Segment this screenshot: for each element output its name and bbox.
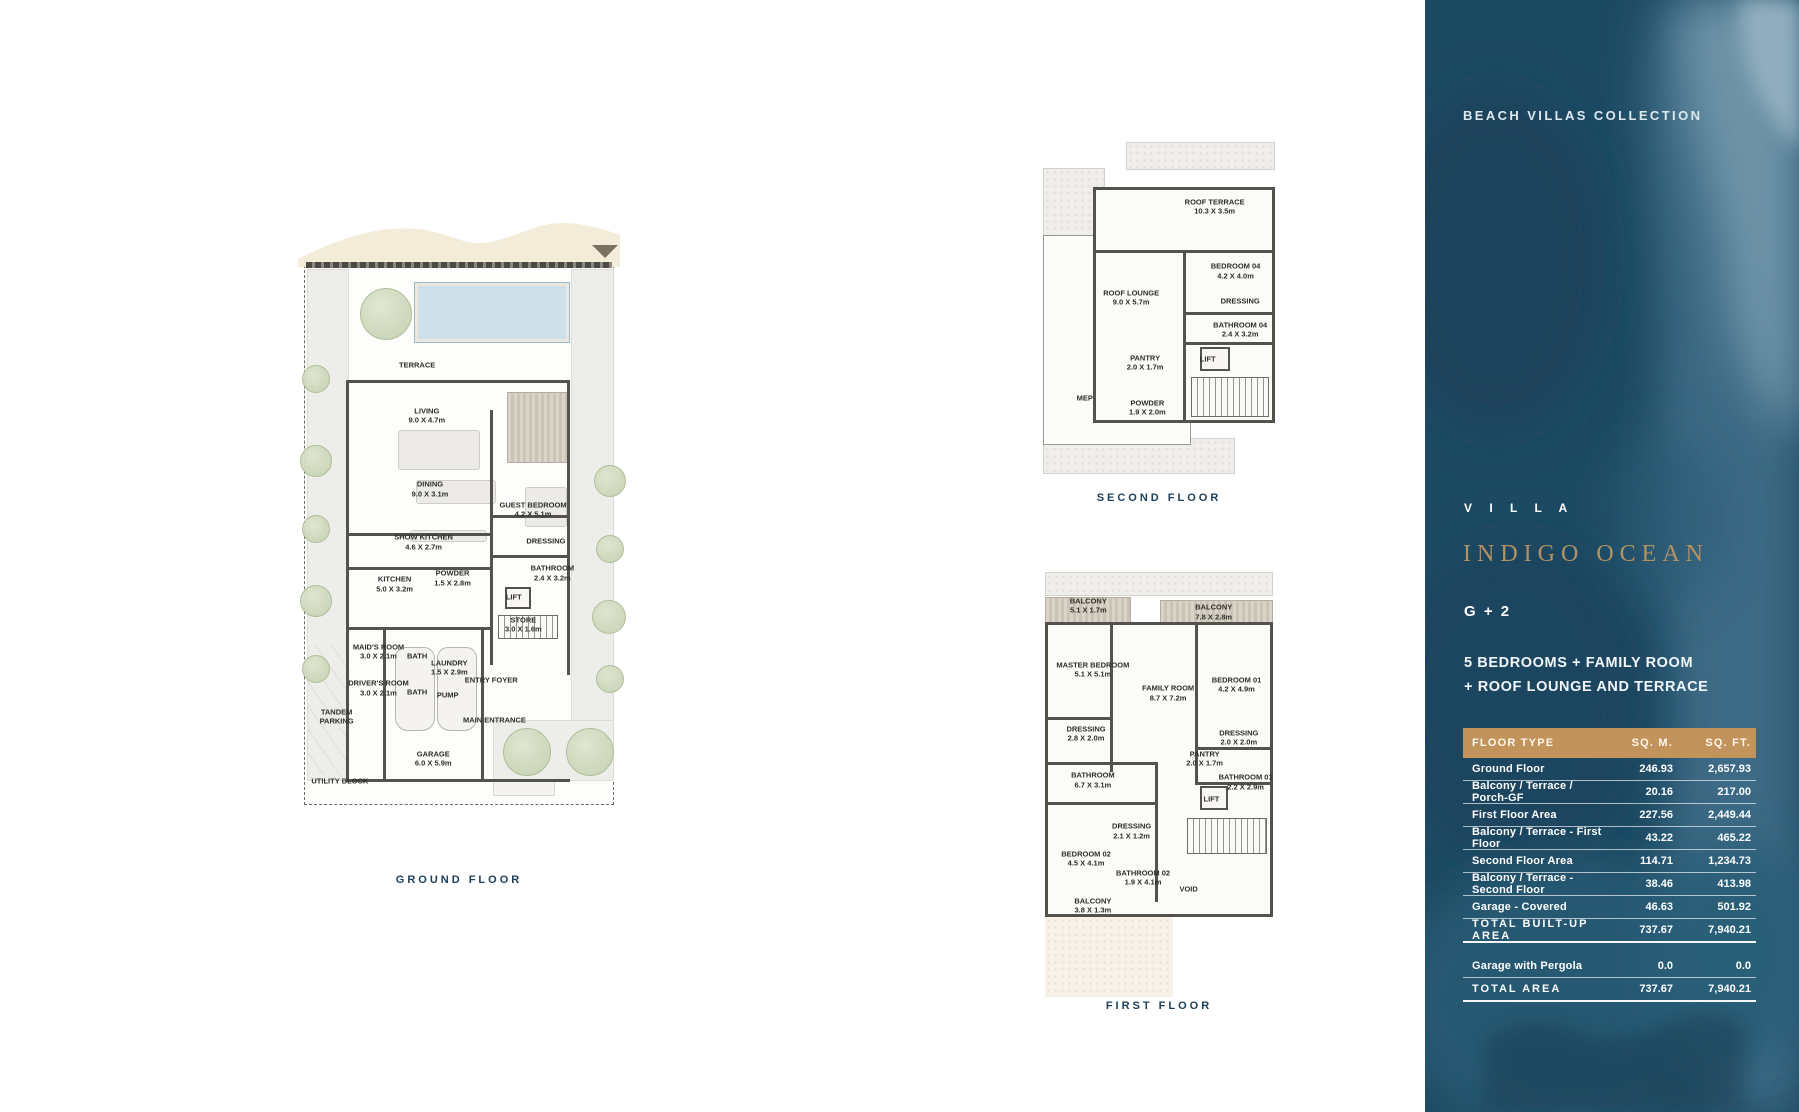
room-label: GUEST BEDROOM 4.2 X 5.1m xyxy=(500,501,567,520)
second-floor-plan: ROOF TERRACE 10.3 X 3.5m BEDROOM 04 4.2 … xyxy=(1043,142,1275,474)
room-label: ROOF LOUNGE 9.0 X 5.7m xyxy=(1103,289,1159,308)
header-sqm: SQ. M. xyxy=(1611,737,1673,749)
second-floor-caption: SECOND FLOOR xyxy=(1043,492,1275,504)
room-label: BEDROOM 04 4.2 X 4.0m xyxy=(1211,262,1261,281)
features-line-1: 5 BEDROOMS + FAMILY ROOM xyxy=(1464,651,1708,675)
room-label: SHOW KITCHEN 4.6 X 2.7m xyxy=(394,533,453,552)
room-label: DRIVER'S ROOM 3.0 X 2.1m xyxy=(348,679,409,698)
first-room-labels: BALCONY 5.1 X 1.7m BALCONY 7.8 X 2.8m MA… xyxy=(1045,572,1273,997)
table-row xyxy=(1463,943,1756,955)
ground-floor-plan: TERRACE LIVING 9.0 X 4.7m DINING 9.0 X 3… xyxy=(298,215,620,805)
room-label: BATHROOM 02 1.9 X 4.1m xyxy=(1116,869,1170,888)
room-label: DRESSING xyxy=(526,537,565,546)
room-label: TANDEM PARKING xyxy=(320,707,354,726)
room-label: BALCONY 7.8 X 2.8m xyxy=(1195,603,1232,622)
villa-type-label: V I L L A xyxy=(1464,501,1574,515)
table-row: Garage with Pergola 0.0 0.0 xyxy=(1463,955,1756,978)
room-label: BATH xyxy=(407,652,427,661)
room-label: VOID xyxy=(1179,884,1197,893)
room-label: BATHROOM 01 2.2 X 2.9m xyxy=(1219,773,1273,792)
villa-name: INDIGO OCEAN xyxy=(1463,541,1709,568)
sidebar: BEACH VILLAS COLLECTION V I L L A INDIGO… xyxy=(1425,0,1799,1112)
room-label: BEDROOM 01 4.2 X 4.9m xyxy=(1212,675,1262,694)
table-header: FLOOR TYPE SQ. M. SQ. FT. xyxy=(1463,728,1756,758)
room-label: STORE 3.0 X 1.6m xyxy=(505,616,542,635)
ground-room-labels: TERRACE LIVING 9.0 X 4.7m DINING 9.0 X 3… xyxy=(298,215,620,805)
room-label: PUMP xyxy=(437,691,459,700)
room-label: LIVING 9.0 X 4.7m xyxy=(408,406,445,425)
collection-title: BEACH VILLAS COLLECTION xyxy=(1463,108,1702,123)
second-room-labels: ROOF TERRACE 10.3 X 3.5m BEDROOM 04 4.2 … xyxy=(1043,142,1275,474)
room-label: ROOF TERRACE 10.3 X 3.5m xyxy=(1185,197,1245,216)
table-row: Garage - Covered 46.63 501.92 xyxy=(1463,896,1756,919)
room-label: DRESSING xyxy=(1221,297,1260,306)
room-label: DRESSING 2.0 X 2.0m xyxy=(1219,728,1258,747)
first-floor-caption: FIRST FLOOR xyxy=(1045,1000,1273,1012)
room-label: MEP xyxy=(1077,393,1093,402)
ground-floor-caption: GROUND FLOOR xyxy=(298,874,620,886)
room-label: MAID'S ROOM 3.0 X 2.1m xyxy=(353,642,404,661)
features: 5 BEDROOMS + FAMILY ROOM + ROOF LOUNGE A… xyxy=(1464,651,1708,699)
table-row: First Floor Area 227.56 2,449.44 xyxy=(1463,804,1756,827)
area-table: FLOOR TYPE SQ. M. SQ. FT. Ground Floor 2… xyxy=(1463,728,1756,1002)
room-label: LIFT xyxy=(506,593,522,602)
first-floor-plan: BALCONY 5.1 X 1.7m BALCONY 7.8 X 2.8m MA… xyxy=(1045,572,1273,997)
table-row: Ground Floor 246.93 2,657.93 xyxy=(1463,758,1756,781)
room-label: POWDER 1.5 X 2.8m xyxy=(434,569,471,588)
header-sqft: SQ. FT. xyxy=(1673,737,1751,749)
room-label: DRESSING 2.1 X 1.2m xyxy=(1112,822,1151,841)
table-rows: Ground Floor 246.93 2,657.93 Balcony / T… xyxy=(1463,758,1756,1002)
room-label: MASTER BEDROOM 5.1 X 5.1m xyxy=(1056,660,1129,679)
table-row: TOTAL AREA 737.67 7,940.21 xyxy=(1463,978,1756,1002)
room-label: TERRACE xyxy=(399,361,435,370)
room-label: BEDROOM 02 4.5 X 4.1m xyxy=(1061,850,1111,869)
storeys-label: G + 2 xyxy=(1464,603,1511,620)
header-floor-type: FLOOR TYPE xyxy=(1472,737,1611,749)
table-row: Second Floor Area 114.71 1,234.73 xyxy=(1463,850,1756,873)
room-label: GARAGE 6.0 X 5.9m xyxy=(415,750,452,769)
room-label: PANTRY 2.0 X 1.7m xyxy=(1186,750,1223,769)
table-row: TOTAL BUILT-UP AREA 737.67 7,940.21 xyxy=(1463,919,1756,943)
table-row: Balcony / Terrace - Second Floor 38.46 4… xyxy=(1463,873,1756,896)
room-label: LIFT xyxy=(1204,795,1220,804)
table-row: Balcony / Terrace / Porch-GF 20.16 217.0… xyxy=(1463,781,1756,804)
room-label: DRESSING 2.8 X 2.0m xyxy=(1066,724,1105,743)
room-label: BATHROOM 04 2.4 X 3.2m xyxy=(1213,320,1267,339)
room-label: BATH xyxy=(407,688,427,697)
room-label: MAIN ENTRANCE xyxy=(463,715,526,724)
brochure-page: TERRACE LIVING 9.0 X 4.7m DINING 9.0 X 3… xyxy=(0,0,1799,1112)
room-label: DINING 9.0 X 3.1m xyxy=(412,480,449,499)
room-label: BATHROOM 6.7 X 3.1m xyxy=(1071,771,1115,790)
features-line-2: + ROOF LOUNGE AND TERRACE xyxy=(1464,675,1708,699)
room-label: ENTRY FOYER xyxy=(465,675,518,684)
room-label: UTILITY BLOCK xyxy=(311,777,368,786)
room-label: BALCONY 5.1 X 1.7m xyxy=(1070,597,1107,616)
table-row: Balcony / Terrace - First Floor 43.22 46… xyxy=(1463,827,1756,850)
room-label: BALCONY 3.8 X 1.3m xyxy=(1074,896,1111,915)
room-label: BATHROOM 2.4 X 3.2m xyxy=(531,564,575,583)
room-label: PANTRY 2.0 X 1.7m xyxy=(1127,353,1164,372)
room-label: FAMILY ROOM 8.7 X 7.2m xyxy=(1142,684,1194,703)
room-label: LIFT xyxy=(1200,355,1216,364)
room-label: LAUNDRY 1.5 X 2.9m xyxy=(431,659,468,678)
room-label: KITCHEN 5.0 X 3.2m xyxy=(376,575,413,594)
room-label: POWDER 1.9 X 2.0m xyxy=(1129,398,1166,417)
